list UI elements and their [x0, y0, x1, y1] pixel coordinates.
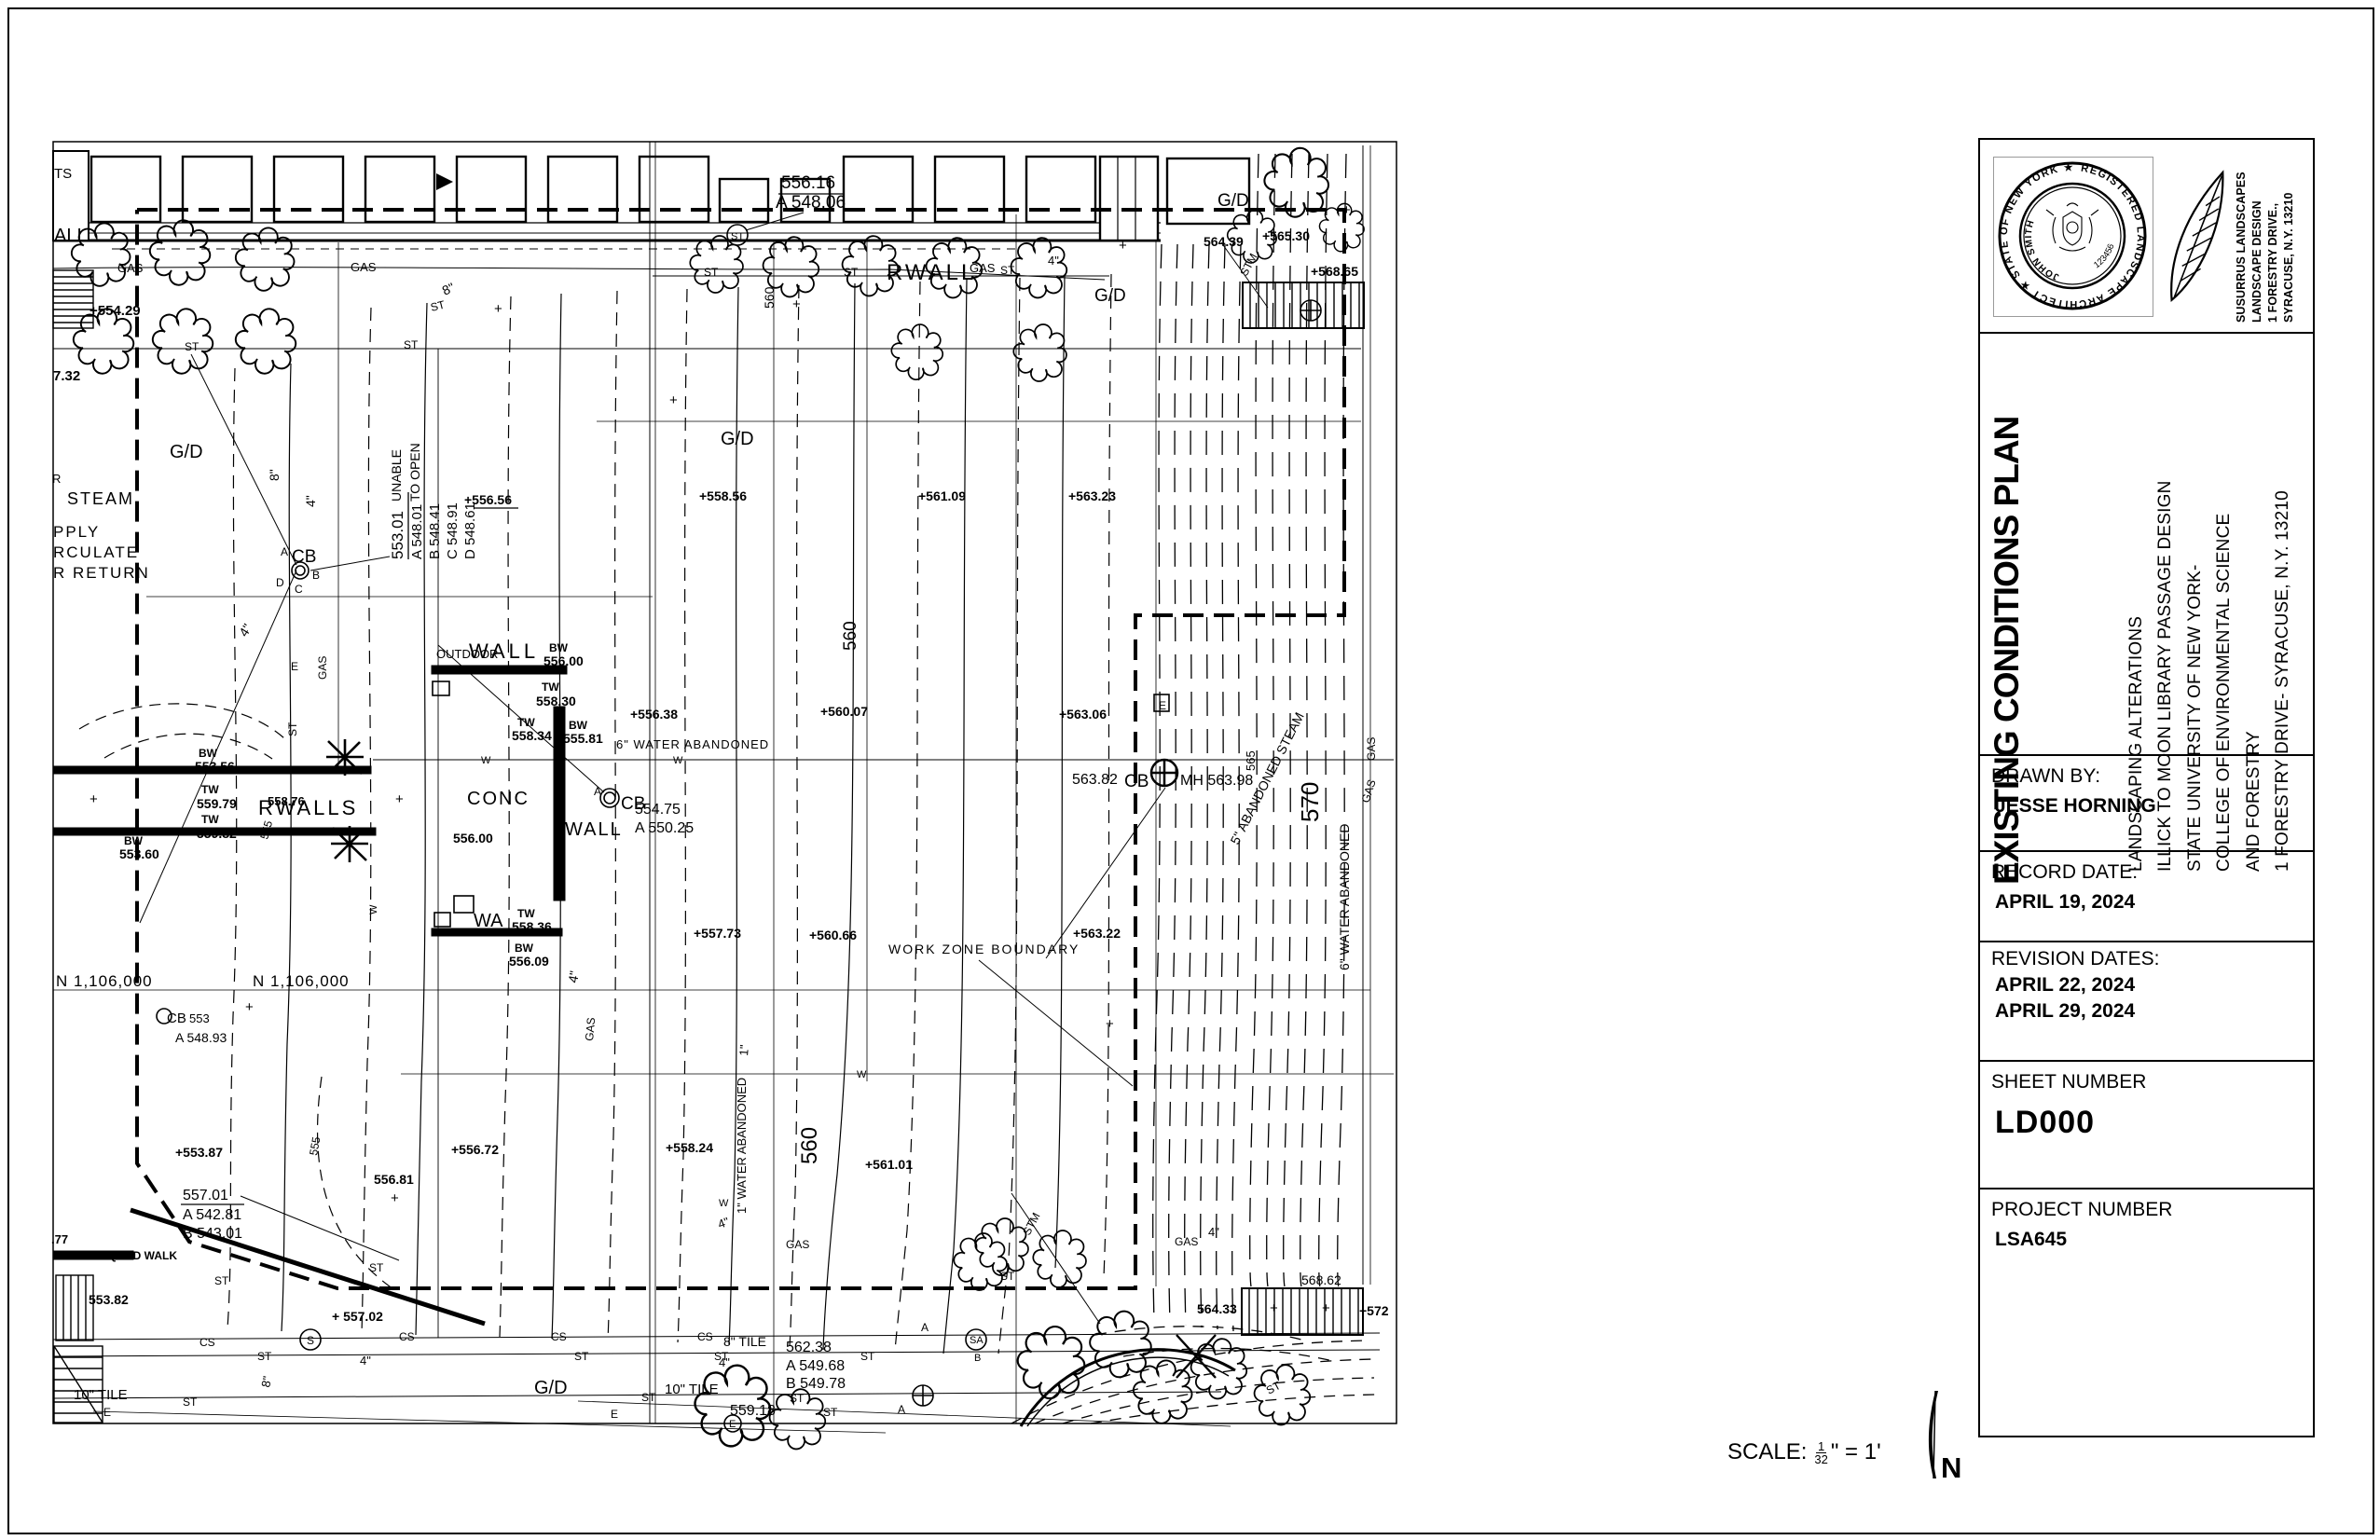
- plan-label: 564.39: [1204, 234, 1244, 249]
- plan-label: MH 563.98: [1180, 773, 1253, 789]
- plan-label: 564.33: [1197, 1301, 1237, 1316]
- plan-label: ST: [574, 1350, 589, 1363]
- plan-label: FUTURE QUAD WALK: [60, 1249, 177, 1262]
- plan-label: CS: [399, 1330, 415, 1343]
- plan-label: TW: [201, 783, 219, 796]
- plan-label: 556.00: [543, 653, 584, 668]
- plan-label: +: [395, 791, 404, 807]
- plan-label: 556.16: [781, 173, 835, 193]
- plan-label: +572: [1359, 1303, 1389, 1318]
- plan-label: 8": [440, 280, 457, 298]
- plan-label: ST: [704, 266, 719, 279]
- plan-label: ST: [860, 1350, 875, 1363]
- plan-label: +: [245, 999, 254, 1015]
- plan-label: CB: [292, 547, 316, 567]
- plan-label: +: [1322, 1300, 1330, 1316]
- plan-label: 8": [267, 469, 282, 481]
- plan-label: +554.29: [89, 303, 141, 319]
- plan-label: B 543.01: [183, 1226, 242, 1242]
- plan-label: .77: [51, 1232, 68, 1246]
- plan-label: C: [295, 583, 303, 596]
- plan-label: 570: [1296, 782, 1324, 822]
- building-door-marker: [436, 173, 453, 190]
- plan-label: GAS: [1359, 777, 1379, 804]
- plan-label: W: [481, 755, 491, 766]
- plan-label: 557.01: [183, 1188, 228, 1203]
- plan-label: +: [669, 392, 678, 408]
- plan-label: TW: [517, 716, 535, 729]
- plan-label: TW: [517, 907, 535, 920]
- plan-label: 568.62: [1301, 1272, 1341, 1287]
- seal-license-number: 123456: [2092, 242, 2117, 270]
- plan-label: +553.87: [175, 1145, 223, 1160]
- plan-label: 554.75: [635, 802, 681, 818]
- plan-label: E: [103, 1406, 111, 1419]
- plan-label: G/D: [1218, 191, 1249, 211]
- plan-label: PPLY: [53, 523, 100, 541]
- plan-label: A 548.01: [409, 504, 425, 559]
- plan-label: W: [673, 755, 683, 766]
- plan-label: ST: [214, 1274, 229, 1287]
- x-symbol: [1176, 1335, 1216, 1378]
- plan-label: N 1,106,000: [56, 972, 153, 990]
- drawn-by-value: JESSE HORNING: [1980, 788, 2313, 818]
- plan-label: R RETURN: [53, 564, 150, 582]
- north-label: N: [1941, 1451, 1961, 1484]
- plan-label: +563.23: [1068, 488, 1116, 503]
- plan-label: 556.09: [509, 954, 549, 969]
- plan-label: +560.07: [820, 704, 868, 719]
- plan-label: ST: [823, 1406, 838, 1419]
- plan-labels: TSALL556.16A 548.06STRWALLG/DG/DG/DG/DG/…: [51, 166, 1389, 1430]
- plan-label: +558.24: [666, 1140, 713, 1155]
- plan-label: CONC: [467, 789, 530, 809]
- plan-label: ST: [257, 1350, 272, 1363]
- revision-date-1: APRIL 22, 2024: [1980, 970, 2313, 997]
- building-footprint: [53, 151, 1249, 249]
- seal-name: JOHN SMITH: [2024, 218, 2060, 282]
- plan-label: ST: [1000, 1270, 1015, 1283]
- plan-label: 1": [736, 1044, 751, 1056]
- plan-label: WALL: [565, 819, 623, 840]
- plan-label: +: [494, 301, 502, 317]
- plan-label: 4": [719, 1355, 730, 1369]
- plan-label: TW: [201, 813, 219, 826]
- plan-label: A: [281, 545, 288, 558]
- plan-label: +: [792, 296, 801, 312]
- north-arrow: N: [1920, 1387, 1976, 1485]
- plan-label: TS: [54, 166, 72, 182]
- title-block: REGISTERED LANDSCAPE ARCHITECT ★ STATE O…: [1978, 138, 2315, 1437]
- plan-label: CS: [551, 1330, 567, 1343]
- plan-label: +: [1119, 238, 1127, 254]
- plan-label: ST: [369, 1261, 384, 1274]
- plan-label: W: [368, 904, 379, 914]
- plan-label: 556.00: [453, 831, 493, 846]
- plan-label: A 550.25: [635, 820, 694, 836]
- plan-label: 4": [1208, 1225, 1219, 1239]
- plan-label: +561.09: [918, 488, 966, 503]
- plan-label: UNABLE: [389, 449, 404, 502]
- plan-label: ST: [183, 1396, 198, 1409]
- plan-label: 565: [1244, 750, 1258, 771]
- plan-label: 8": [258, 1375, 274, 1389]
- plan-label: A 548.06: [776, 193, 846, 213]
- plan-label: N 1,106,000: [253, 972, 350, 990]
- plan-label: A: [921, 1321, 929, 1334]
- plan-label: 558.36: [512, 919, 552, 934]
- plan-label: 4": [236, 621, 255, 639]
- plan-label: GAS: [970, 261, 996, 275]
- swale-lines: [1021, 1350, 1235, 1426]
- plan-label: 553.01: [389, 511, 406, 559]
- plan-label: STM: [1020, 1210, 1042, 1237]
- plan-label: ELEC. RECEPTACLE: [436, 663, 555, 677]
- plan-label: B 548.41: [427, 503, 443, 559]
- firm-leaf-logo: [2167, 164, 2239, 318]
- scale-fraction: 1 32: [1814, 1440, 1827, 1465]
- plan-label: 558.30: [536, 694, 576, 708]
- plan-label: +: [391, 1190, 399, 1206]
- plan-label: 559.18: [730, 1403, 776, 1419]
- sheet-number-label: SHEET NUMBER: [1980, 1062, 2313, 1093]
- plan-label: 558.76: [268, 794, 305, 808]
- plan-label: ST: [1264, 1379, 1284, 1397]
- plan-label: 4": [716, 1215, 732, 1231]
- plan-label: TO OPEN: [407, 443, 422, 502]
- plan-label: D: [276, 576, 284, 589]
- plan-label: 1" WATER ABANDONED: [735, 1078, 749, 1214]
- plan-label: + 557.02: [332, 1309, 383, 1324]
- plan-label: +557.73: [694, 926, 741, 941]
- plan-label: +: [1270, 1300, 1278, 1316]
- plan-label: +: [1106, 1016, 1114, 1032]
- plan-label: +: [89, 791, 98, 807]
- plan-label: CB: [167, 1011, 186, 1026]
- plan-label: 555: [307, 1135, 323, 1156]
- plan-label: +565.30: [1262, 228, 1310, 243]
- plan-label: ST: [1000, 264, 1015, 277]
- plan-label: GAS: [117, 261, 144, 275]
- plan-label: B: [312, 569, 320, 582]
- plan-label: B: [974, 1353, 981, 1364]
- plan-label: R: [52, 472, 61, 486]
- plan-label: +561.01: [865, 1157, 913, 1172]
- plan-label: G/D: [1094, 286, 1126, 306]
- plan-label: E: [1159, 699, 1166, 712]
- plan-label: 559.82: [197, 826, 237, 841]
- plan-label: GAS: [1175, 1235, 1198, 1248]
- plan-label: G/D: [534, 1378, 568, 1398]
- project-number-label: PROJECT NUMBER: [1980, 1189, 2313, 1221]
- plan-label: 560: [762, 286, 777, 309]
- plan-label: E: [291, 660, 298, 673]
- sheet-number-value: LD000: [1980, 1093, 2313, 1141]
- plan-label: WA: [474, 911, 503, 931]
- star-symbol: [326, 739, 364, 776]
- plan-label: ST: [731, 231, 744, 242]
- plan-label: GAS: [583, 1017, 598, 1041]
- firm-tagline: LANDSCAPE DESIGN: [2249, 162, 2265, 323]
- plan-label: W: [857, 1069, 867, 1080]
- plan-label: C 548.91: [445, 502, 461, 559]
- plan-label: +568.65: [1311, 264, 1358, 279]
- plan-label: 7.32: [53, 368, 80, 384]
- plan-label: 559.79: [197, 796, 237, 811]
- record-date-value: APRIL 19, 2024: [1980, 884, 2313, 914]
- plan-label: WORK ZONE BOUNDARY: [888, 942, 1080, 956]
- plan-label: BW: [199, 747, 218, 760]
- sheet-number-section: SHEET NUMBER LD000: [1980, 1060, 2313, 1188]
- plan-label: A 549.68: [786, 1358, 845, 1374]
- plan-label: WALL: [469, 639, 539, 663]
- plan-label: ST: [641, 1391, 656, 1404]
- plan-label: A 548.93: [175, 1030, 227, 1045]
- plan-label: 8" TILE: [723, 1334, 766, 1349]
- plan-label: G/D: [721, 429, 754, 449]
- plan-label: B 549.78: [786, 1376, 846, 1392]
- plan-label: ST: [429, 297, 447, 313]
- plan-label: 10" TILE: [665, 1382, 719, 1397]
- plan-label: E: [729, 1419, 736, 1430]
- plan-label: ST: [790, 1392, 805, 1405]
- plan-label: ST: [286, 722, 299, 736]
- plan-label: 553: [189, 1011, 210, 1025]
- plan-label: 562.38: [786, 1340, 832, 1355]
- plan-label: +556.72: [451, 1142, 499, 1157]
- seal-coat-of-arms: [2046, 203, 2098, 251]
- plan-label: ST: [404, 338, 419, 351]
- plan-label: 4": [360, 1354, 371, 1368]
- revision-dates-label: REVISION DATES:: [1980, 942, 2313, 970]
- plan-label: D 548.61: [462, 502, 478, 559]
- record-date-section: RECORD DATE: APRIL 19, 2024: [1980, 850, 2313, 941]
- plan-label: STEAM: [67, 489, 134, 508]
- plan-label: CB: [1124, 772, 1149, 791]
- plan-label: 553.82: [89, 1292, 129, 1307]
- plan-label: 555.81: [563, 731, 603, 746]
- plan-label: 6" WATER ABANDONED: [616, 737, 769, 751]
- plan-label: CS: [199, 1336, 215, 1349]
- star-symbol: [331, 826, 368, 862]
- drawing-sheet: TSALL556.16A 548.06STRWALLG/DG/DG/DG/DG/…: [0, 0, 2380, 1540]
- plan-label: GAS: [351, 260, 377, 274]
- firm-name: SUSURRUS LANDSCAPES: [2234, 162, 2249, 323]
- plan-label: 4": [565, 969, 582, 983]
- plan-label: 560: [797, 1127, 822, 1164]
- plan-label: 6" WATER ABANDONED: [1337, 824, 1352, 970]
- seal-section: REGISTERED LANDSCAPE ARCHITECT ★ STATE O…: [1980, 140, 2313, 332]
- plan-label: +556.38: [630, 707, 678, 722]
- plan-label: G/D: [170, 442, 203, 462]
- record-date-label: RECORD DATE:: [1980, 852, 2313, 884]
- plan-label: W: [719, 1198, 729, 1209]
- plan-label: GAS: [786, 1238, 809, 1251]
- scale-label: SCALE:: [1727, 1439, 1807, 1465]
- project-number-section: PROJECT NUMBER LSA645: [1980, 1188, 2313, 1301]
- firm-city: SYRACUSE, N.Y. 13210: [2281, 162, 2297, 323]
- plan-label: BW: [124, 834, 144, 847]
- plan-label: +558.56: [699, 488, 747, 503]
- plan-label: RCULATE: [53, 543, 139, 561]
- plan-label: 4": [303, 495, 318, 507]
- plan-label: GAS: [1365, 737, 1378, 761]
- plan-label: 555: [257, 818, 275, 840]
- plan-label: 553.60: [119, 846, 159, 861]
- drawn-by-label: DRAWN BY:: [1980, 756, 2313, 788]
- plan-label: RWALL: [887, 260, 976, 285]
- firm-address: 1 FORESTRY DRIVE.,: [2265, 162, 2281, 323]
- plan-label: CS: [697, 1330, 713, 1343]
- project-number-value: LSA645: [1980, 1221, 2313, 1251]
- plan-label: 4": [1048, 254, 1059, 268]
- scale-note: SCALE: 1 32 " = 1': [1727, 1439, 1881, 1465]
- architect-seal: REGISTERED LANDSCAPE ARCHITECT ★ STATE O…: [1993, 157, 2153, 317]
- plan-label: +: [1342, 202, 1351, 218]
- plan-label: 560: [841, 621, 860, 651]
- plan-label: E: [611, 1408, 618, 1421]
- plan-label: 556.81: [374, 1172, 414, 1187]
- plan-label: +563.22: [1073, 926, 1121, 941]
- contour-lines: [79, 274, 1111, 1354]
- plan-label: S: [307, 1334, 314, 1347]
- plan-label: 563.82: [1072, 772, 1118, 788]
- plan-label: +560.66: [809, 928, 857, 942]
- plan-label: ST: [185, 340, 199, 353]
- plan-label: A: [594, 785, 601, 798]
- plan-label: TW: [542, 681, 559, 694]
- scale-numerator: 1: [1816, 1440, 1826, 1453]
- scale-denominator: 32: [1814, 1453, 1827, 1465]
- revision-date-2: APRIL 29, 2024: [1980, 997, 2313, 1023]
- plan-label: SA: [970, 1335, 984, 1346]
- plan-label: ST: [844, 266, 859, 279]
- plan-label: ALL: [54, 226, 88, 246]
- plan-label: BW: [515, 942, 534, 955]
- plan-label: A 542.81: [183, 1207, 241, 1223]
- plan-label: 553.56: [195, 759, 235, 774]
- scale-units: " = 1': [1831, 1439, 1881, 1465]
- plan-label: 10" TILE: [74, 1387, 128, 1403]
- firm-info: SUSURRUS LANDSCAPES LANDSCAPE DESIGN 1 F…: [2234, 162, 2308, 323]
- plan-label: +563.06: [1059, 707, 1107, 722]
- revision-dates-section: REVISION DATES: APRIL 22, 2024 APRIL 29,…: [1980, 941, 2313, 1060]
- plan-label: A: [898, 1403, 905, 1416]
- drawn-by-section: DRAWN BY: JESSE HORNING: [1980, 754, 2313, 850]
- plan-label: BW: [569, 719, 588, 732]
- plan-label: 558.34: [512, 728, 552, 743]
- plan-label: BW: [549, 641, 569, 654]
- plan-label: GAS: [316, 656, 329, 680]
